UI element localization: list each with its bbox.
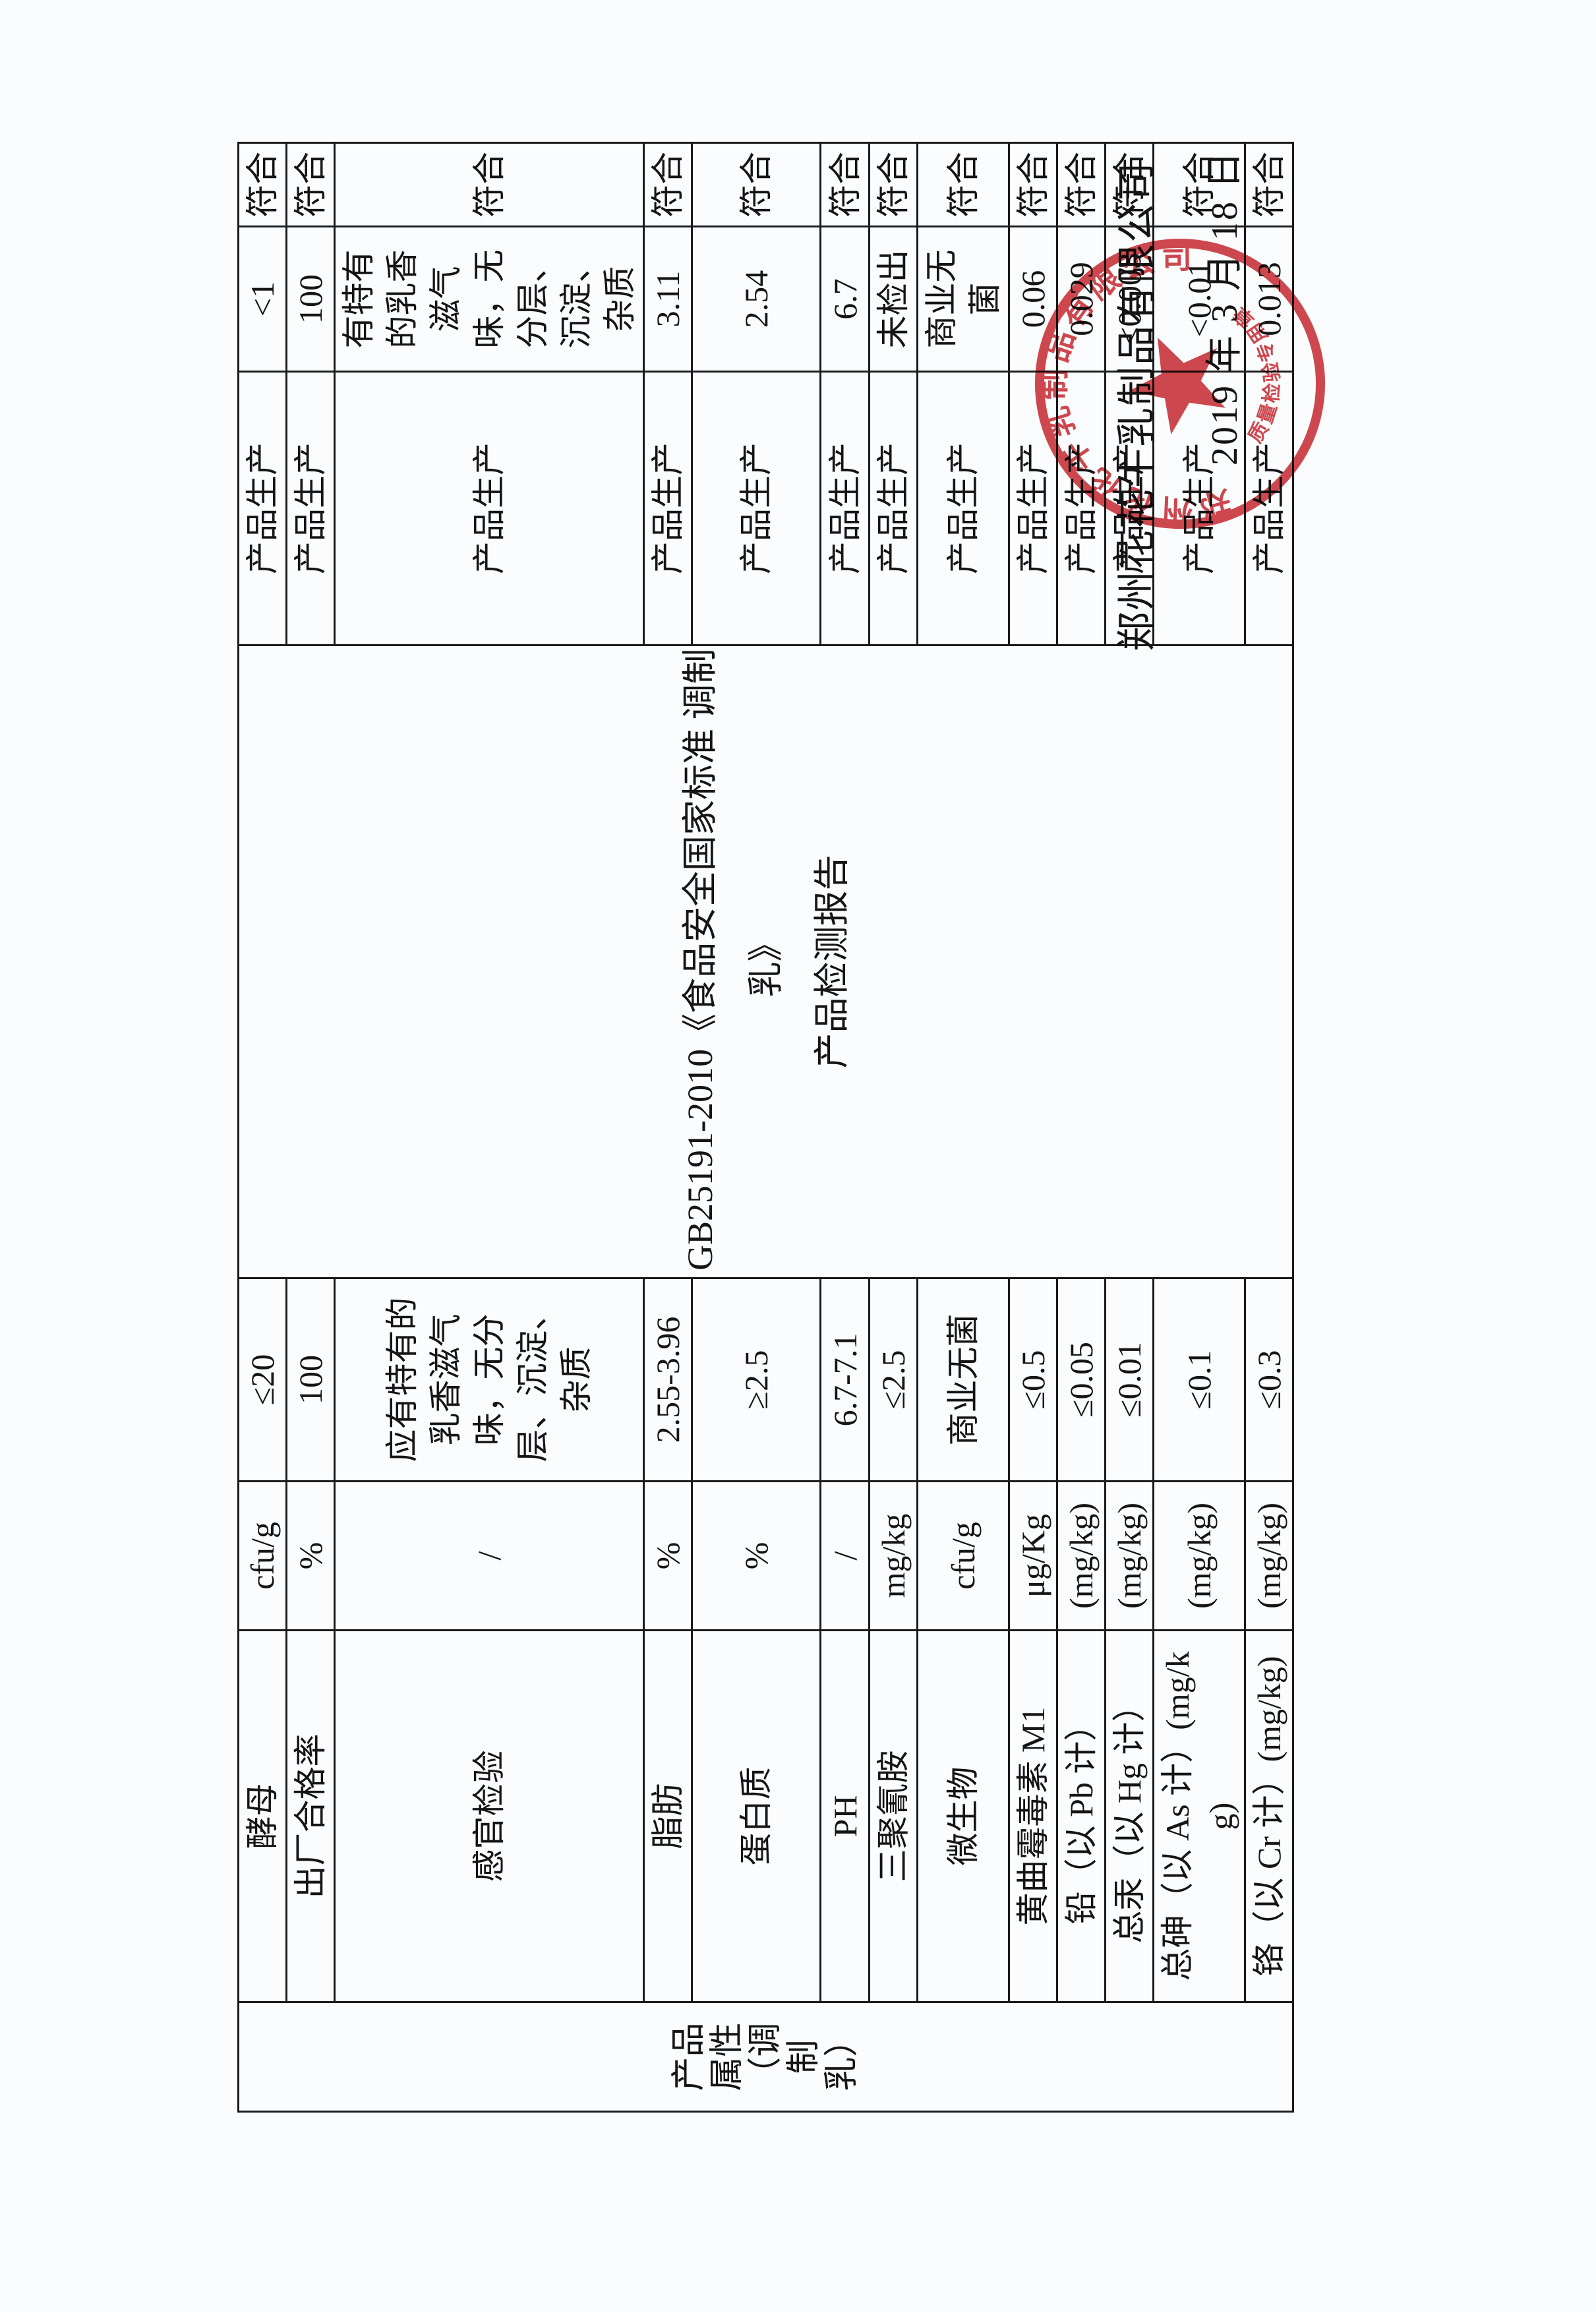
item-cell: 脂肪 (644, 1631, 692, 2002)
source-cell: 产品生产 (335, 372, 644, 646)
source-cell: 产品生产 (287, 372, 335, 646)
item-cell: 黄曲霉毒素 M1 (1009, 1631, 1057, 2002)
standard-cell: ≤2.5 (870, 1278, 918, 1482)
conclusion-cell: 符合 (1057, 143, 1106, 227)
result-cell: 商业无菌 (918, 227, 1009, 372)
result-cell: 3.11 (644, 227, 692, 372)
unit-cell: % (692, 1482, 821, 1631)
result-cell: 有特有的乳香滋气味，无分层、沉淀、杂质 (335, 227, 644, 372)
unit-cell: mg/kg (870, 1482, 918, 1631)
seal-svg: 郑州花花牛乳制品有限公司 质量检验专用章 (1007, 211, 1353, 556)
unit-cell: cfu/g (918, 1482, 1009, 1631)
unit-cell: / (335, 1482, 644, 1631)
conclusion-cell: 符合 (335, 143, 644, 227)
standard-cell: 应有特有的乳香滋气味，无分层、沉淀、杂质 (335, 1278, 644, 1482)
unit-cell: (mg/kg) (1154, 1482, 1245, 1631)
result-cell: 100 (287, 227, 335, 372)
standard-cell: 2.55-3.96 (644, 1278, 692, 1482)
item-cell: 总砷（以 As 计）(mg/kg) (1154, 1631, 1245, 2002)
result-cell: 2.54 (692, 227, 821, 372)
unit-cell: μg/Kg (1009, 1482, 1057, 1631)
star-icon (1122, 330, 1227, 440)
standard-cell: 100 (287, 1278, 335, 1482)
source-cell: 产品生产 (644, 372, 692, 646)
item-cell: 总汞（以 Hg 计） (1106, 1631, 1154, 2002)
conclusion-cell: 符合 (644, 143, 692, 227)
source-cell: 产品生产 (821, 372, 870, 646)
source-cell: 产品生产 (239, 372, 287, 646)
conclusion-cell: 符合 (821, 143, 870, 227)
item-cell: 出厂合格率 (287, 1631, 335, 2002)
rotated-document: 产品属性（调制乳） 酵母 cfu/g ≤20 GB25191-2010《食品安全… (0, 0, 1596, 2313)
unit-cell: (mg/kg) (1245, 1482, 1293, 1631)
item-cell: 感官检验 (335, 1631, 644, 2002)
result-cell: 未检出 (870, 227, 918, 372)
unit-cell: cfu/g (239, 1482, 287, 1631)
source-cell: 产品生产 (918, 372, 1009, 646)
company-seal-stamp: 郑州花花牛乳制品有限公司 质量检验专用章 (1007, 211, 1353, 556)
standard-cell: ≤0.1 (1154, 1278, 1245, 1482)
inspection-basis-cell: GB25191-2010《食品安全国家标准 调制 乳》 产品检测报告 (239, 646, 1293, 1278)
item-cell: 蛋白质 (692, 1631, 821, 2002)
unit-cell: / (821, 1482, 870, 1631)
standard-cell: ≤0.05 (1057, 1278, 1106, 1482)
unit-cell: % (287, 1482, 335, 1631)
svg-text:质量检验专用章: 质量检验专用章 (1225, 296, 1293, 449)
unit-cell: % (644, 1482, 692, 1631)
item-cell: 酵母 (239, 1631, 287, 2002)
table-row: 产品属性（调制乳） 酵母 cfu/g ≤20 GB25191-2010《食品安全… (239, 143, 287, 2112)
unit-cell: (mg/kg) (1106, 1482, 1154, 1631)
source-cell: 产品生产 (870, 372, 918, 646)
basis-line-2: 乳》 (733, 653, 799, 1271)
product-attribute-cell: 产品属性（调制乳） (239, 2002, 1293, 2112)
standard-cell: ≤0.3 (1245, 1278, 1293, 1482)
standard-cell: 商业无菌 (918, 1278, 1009, 1482)
standard-cell: 6.7-7.1 (821, 1278, 870, 1482)
standard-cell: ≥2.5 (692, 1278, 821, 1482)
conclusion-cell: 符合 (1009, 143, 1057, 227)
seal-bottom-text: 质量检验专用章 (1225, 296, 1293, 449)
item-cell: 铬（以 Cr 计）(mg/kg) (1245, 1631, 1293, 2002)
conclusion-cell: 符合 (239, 143, 287, 227)
product-attribute-label: 产品属性（调制乳） (670, 2018, 862, 2097)
result-cell: <1 (239, 227, 287, 372)
unit-cell: (mg/kg) (1057, 1482, 1106, 1631)
conclusion-cell: 符合 (870, 143, 918, 227)
basis-line-1: GB25191-2010《食品安全国家标准 调制 (667, 653, 733, 1271)
scanned-page: 产品属性（调制乳） 酵母 cfu/g ≤20 GB25191-2010《食品安全… (0, 0, 1596, 2313)
item-cell: 三聚氰胺 (870, 1631, 918, 2002)
standard-cell: ≤0.5 (1009, 1278, 1057, 1482)
conclusion-cell: 符合 (692, 143, 821, 227)
result-cell: 6.7 (821, 227, 870, 372)
source-cell: 产品生产 (692, 372, 821, 646)
standard-cell: ≤0.01 (1106, 1278, 1154, 1482)
conclusion-cell: 符合 (287, 143, 335, 227)
standard-cell: ≤20 (239, 1278, 287, 1482)
conclusion-cell: 符合 (918, 143, 1009, 227)
item-cell: 铅（以 Pb 计） (1057, 1631, 1106, 2002)
item-cell: 微生物 (918, 1631, 1009, 2002)
basis-line-3: 产品检测报告 (799, 653, 865, 1271)
item-cell: PH (821, 1631, 870, 2002)
